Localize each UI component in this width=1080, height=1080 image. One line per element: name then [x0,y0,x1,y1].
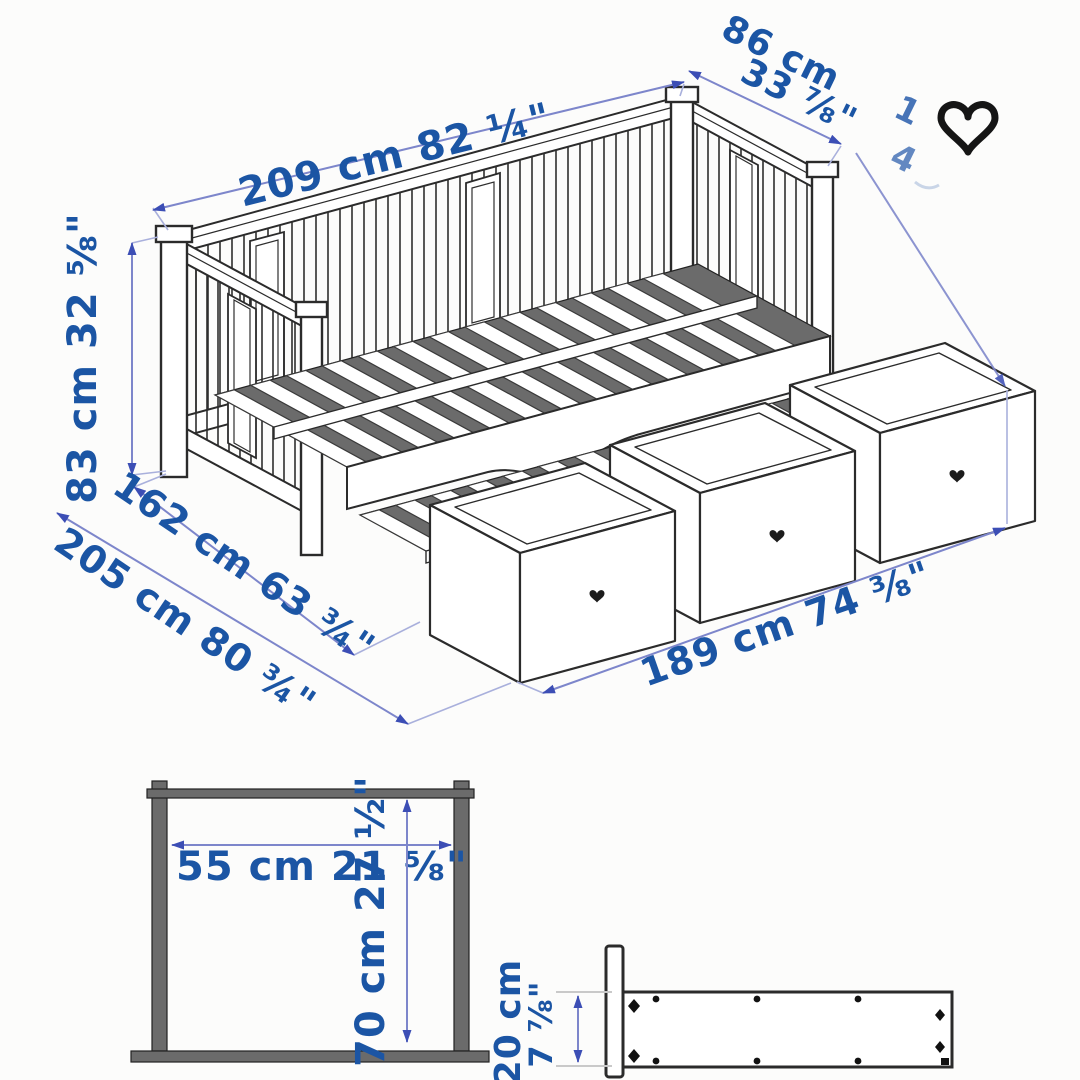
product-dimension-page: 209 cm 82 ¼" 86 cm 33 ⅞" 1 4 83 cm 32 ⅝"… [0,0,1080,1080]
dim-label-height: 83 cm 32 ⅝" [60,212,106,504]
dim-label-rail-height-2: 7 ⅞" [522,980,560,1067]
side-rail-detail-diagram: 20 cm 7 ⅞" [488,946,952,1080]
drawer-1 [430,463,675,683]
headboard-clearance-diagram: 55 cm 21 ⅝" 70 cm 27 ½" [131,775,489,1067]
dim-label-headboard-width: 55 cm 21 ⅝" [176,844,468,890]
technical-drawing: 209 cm 82 ¼" 86 cm 33 ⅞" 1 4 83 cm 32 ⅝"… [0,0,1080,1080]
favorite-heart-icon[interactable] [941,105,995,152]
dim-label-faded-2: 4 [884,136,924,183]
dim-headboard-width: 55 cm 21 ⅝" [172,844,468,890]
dim-label-headboard-height: 70 cm 27 ½" [348,775,394,1067]
dim-headboard-height: 70 cm 27 ½" [348,775,407,1067]
dim-height-83: 83 cm 32 ⅝" [60,212,132,504]
dim-label-faded-1: 1 [888,88,928,135]
dim-rail-height: 20 cm 7 ⅞" [488,959,578,1080]
